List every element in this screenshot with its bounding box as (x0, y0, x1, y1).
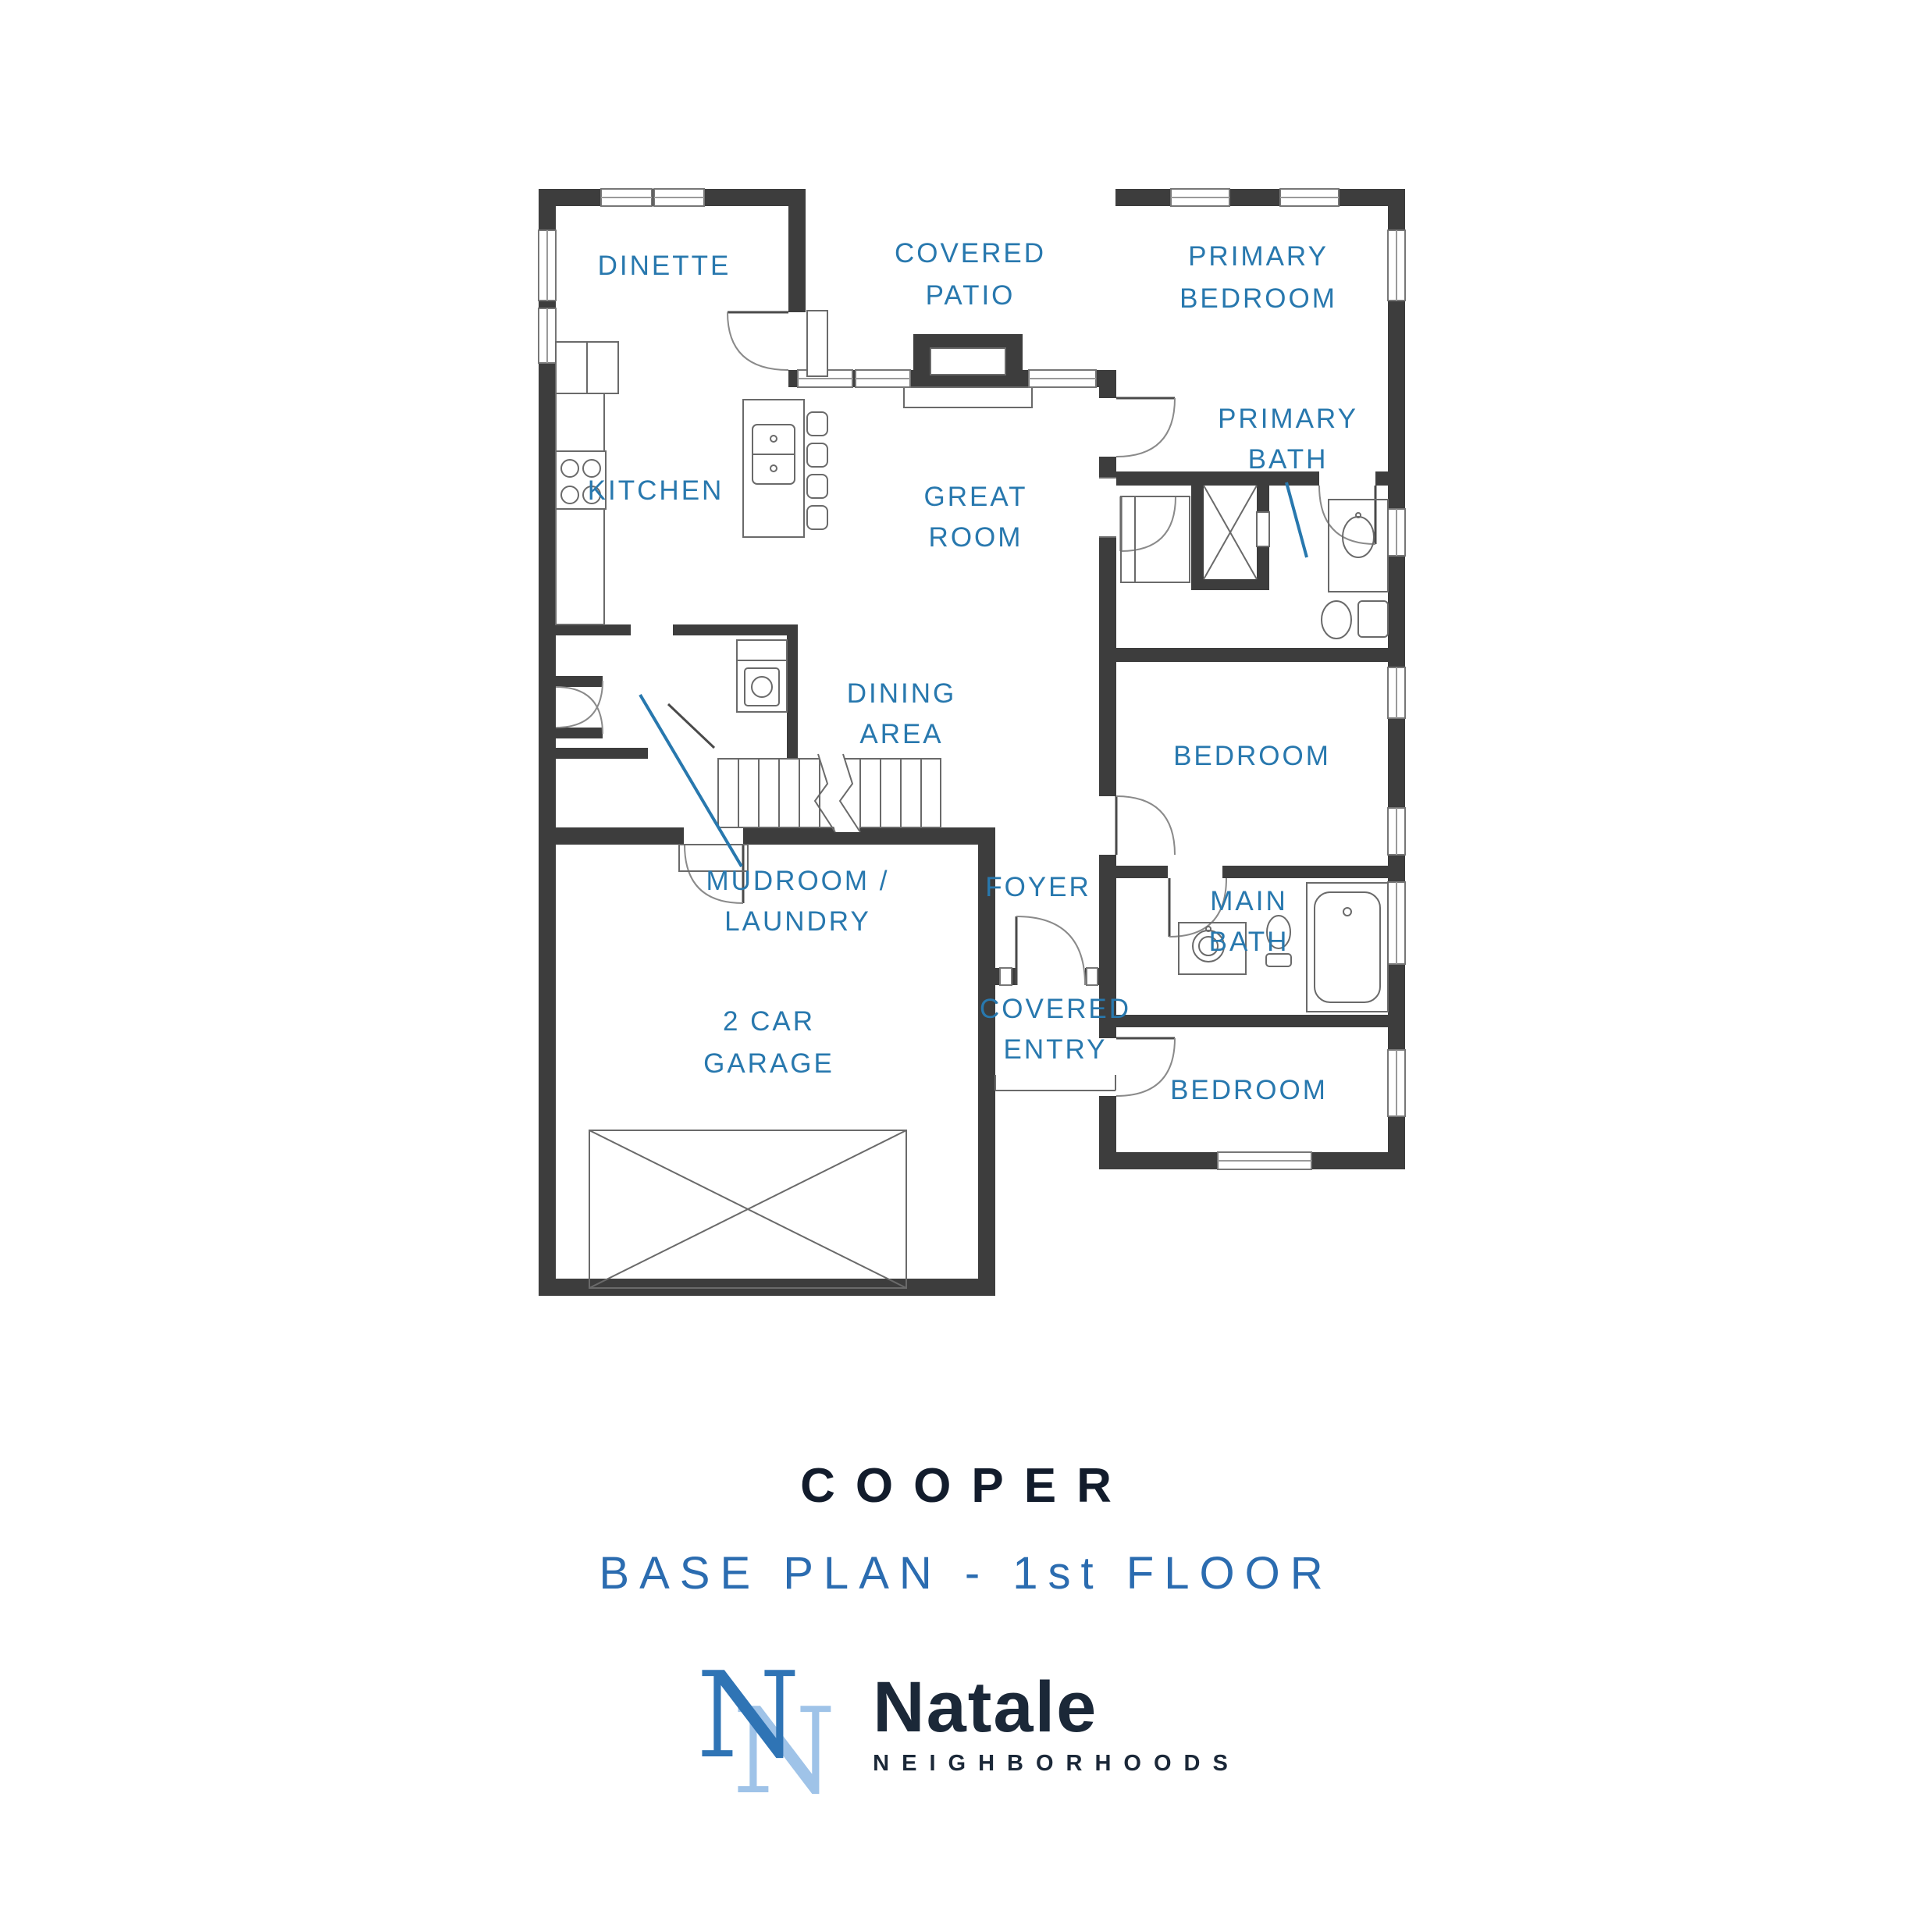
room-label-main-bath-2: BATH (1209, 927, 1290, 957)
refrigerator (556, 342, 618, 393)
builder-logo: N N Natale NEIGHBORHOODS (0, 1639, 1932, 1808)
room-label-main-bath-1: MAIN (1210, 886, 1288, 916)
plan-name: COOPER (0, 1458, 1932, 1514)
room-label-kitchen: KITCHEN (588, 475, 724, 506)
room-label-dining-area-1: DINING (847, 678, 957, 709)
stairs (718, 754, 941, 832)
interior-walls (539, 189, 1388, 1152)
room-label-mudroom-1: MUDROOM / (706, 866, 889, 896)
room-label-dining-area-2: AREA (859, 719, 943, 749)
room-label-garage-2: GARAGE (703, 1048, 834, 1079)
primary-bath-toilet (1322, 601, 1388, 639)
room-label-covered-entry-2: ENTRY (1004, 1034, 1108, 1065)
room-label-garage-1: 2 CAR (723, 1006, 815, 1037)
room-label-primary-bedroom-1: PRIMARY (1188, 241, 1329, 272)
room-label-primary-bath-1: PRIMARY (1218, 404, 1358, 434)
primary-bath-closet (1121, 496, 1190, 582)
room-label-great-room-1: GREAT (924, 482, 1028, 512)
plan-variant: BASE PLAN - 1st FLOOR (0, 1547, 1932, 1599)
kitchen-island (743, 400, 827, 537)
primary-bath-vanity (1329, 500, 1388, 592)
floor-plan-sheet: DINETTE COVERED PATIO PRIMARY BEDROOM PR… (0, 0, 1932, 1932)
fireplace (904, 334, 1032, 407)
room-label-primary-bath-2: BATH (1248, 444, 1329, 475)
room-label-covered-entry-1: COVERED (980, 994, 1131, 1024)
logo-tagline: NEIGHBORHOODS (873, 1751, 1240, 1777)
room-label-great-room-2: ROOM (929, 522, 1023, 553)
logo-name: Natale (873, 1671, 1240, 1743)
room-label-covered-patio-1: COVERED (895, 238, 1046, 269)
covered-entry-edge (995, 1075, 1115, 1091)
shower (1191, 486, 1269, 590)
room-label-bedroom-bottom: BEDROOM (1170, 1075, 1328, 1105)
logo-monogram-icon: N N (692, 1639, 856, 1808)
room-label-dinette: DINETTE (598, 251, 731, 281)
room-label-mudroom-2: LAUNDRY (724, 906, 871, 937)
room-label-foyer: FOYER (985, 872, 1091, 902)
bathtub (1307, 883, 1388, 1012)
garage-door-panel (589, 1130, 906, 1288)
washer-dryer (737, 640, 787, 712)
room-label-primary-bedroom-2: BEDROOM (1179, 283, 1337, 314)
logo-monogram-front-n: N (696, 1646, 800, 1784)
room-label-covered-patio-2: PATIO (926, 280, 1016, 311)
room-label-bedroom-mid: BEDROOM (1173, 741, 1331, 771)
primary-bath-pointer-line (1286, 482, 1307, 557)
